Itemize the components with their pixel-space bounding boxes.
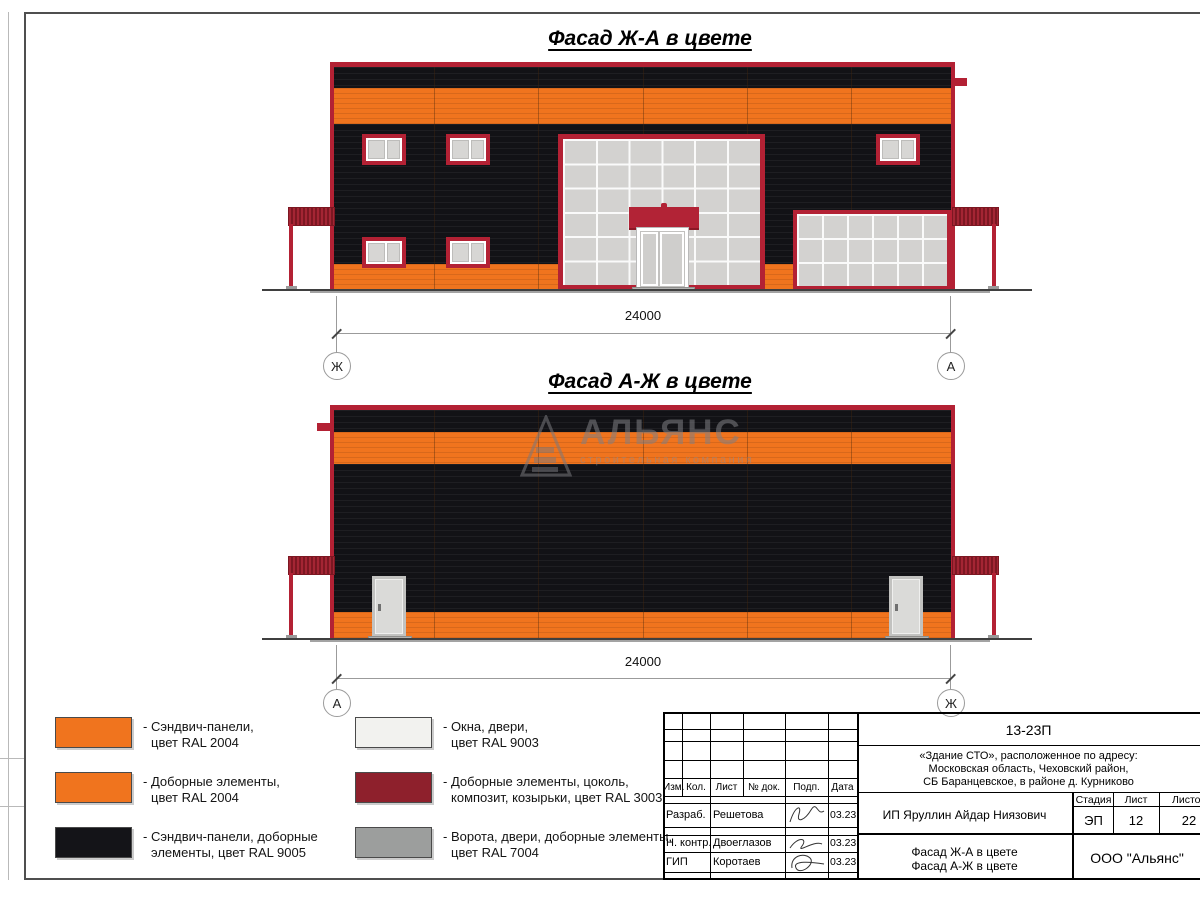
service-door bbox=[889, 576, 923, 637]
panel-joint bbox=[747, 410, 748, 638]
window-pane bbox=[387, 243, 400, 262]
window bbox=[362, 237, 406, 268]
panel-joint bbox=[434, 67, 435, 290]
door-leaf bbox=[660, 232, 684, 286]
legend-label: - Доборные элементы, цоколь,композит, ко… bbox=[443, 774, 662, 806]
date-control: 03.23 bbox=[830, 837, 856, 849]
sheet-margin-divider bbox=[0, 806, 24, 807]
axis-label: А bbox=[947, 359, 956, 374]
service-door bbox=[372, 576, 406, 637]
dimension-value: 24000 bbox=[593, 654, 693, 669]
legend-swatch bbox=[355, 772, 432, 803]
panel-joint bbox=[434, 410, 435, 638]
project-address-line3: СБ Баранцевское, в районе д. Курниково bbox=[857, 776, 1200, 788]
dimension-value: 24000 bbox=[593, 308, 693, 323]
extension-line bbox=[336, 645, 337, 689]
right-curtain-wall bbox=[793, 210, 951, 290]
facade-bottom-building bbox=[330, 405, 955, 638]
window-pane bbox=[452, 140, 469, 159]
window-pane bbox=[901, 140, 914, 159]
facade-bottom-title: Фасад А-Ж в цвете bbox=[400, 370, 900, 394]
gutter-outlet bbox=[317, 423, 331, 431]
axis-label: Ж bbox=[331, 359, 343, 374]
axis-bubble: А bbox=[323, 689, 351, 717]
extension-line bbox=[950, 296, 951, 353]
legend-label: - Ворота, двери, доборные элементы,цвет … bbox=[443, 829, 672, 861]
legend-label: - Сэндвич-панели,цвет RAL 2004 bbox=[143, 719, 254, 751]
axis-bubble: А bbox=[937, 352, 965, 380]
doc-number: 13-23П bbox=[857, 722, 1200, 738]
sheets-total: 22 bbox=[1160, 813, 1200, 828]
window-pane bbox=[387, 140, 400, 159]
legend-swatch bbox=[55, 717, 132, 748]
role-developer: Разраб. bbox=[666, 809, 706, 821]
project-address-line2: Московская область, Чеховский район, bbox=[857, 763, 1200, 775]
window-pane bbox=[368, 140, 385, 159]
sheet-number: 12 bbox=[1113, 813, 1159, 828]
legend-swatch bbox=[55, 827, 132, 858]
curtain-wall-grid bbox=[797, 214, 947, 286]
window-pane bbox=[471, 140, 484, 159]
panel-joint bbox=[851, 410, 852, 638]
sheets-header: Листов bbox=[1160, 794, 1200, 806]
canopy-post bbox=[289, 224, 293, 289]
parapet-trim bbox=[330, 62, 955, 67]
company-name: ООО "Альянс" bbox=[1074, 850, 1200, 866]
canopy-post bbox=[992, 224, 996, 289]
ground-shadow bbox=[310, 640, 990, 642]
legend-swatch bbox=[355, 827, 432, 858]
corner-trim-right bbox=[951, 62, 955, 290]
legend-label: - Доборные элементы,цвет RAL 2004 bbox=[143, 774, 280, 806]
window bbox=[876, 134, 920, 165]
ground-shadow bbox=[310, 291, 990, 293]
axis-bubble: Ж bbox=[323, 352, 351, 380]
role-gip: ГИП bbox=[666, 856, 688, 868]
client-name: ИП Яруллин Айдар Ниязович bbox=[857, 808, 1072, 822]
window bbox=[362, 134, 406, 165]
door-handle bbox=[895, 604, 898, 611]
dimension-line bbox=[336, 678, 950, 679]
legend-swatch bbox=[355, 717, 432, 748]
col-header-doc: № док. bbox=[743, 782, 785, 793]
corner-trim-left bbox=[330, 405, 334, 638]
drawing-sheet: Фасад Ж-А в цвете bbox=[0, 0, 1200, 900]
sheet-margin-line bbox=[8, 12, 9, 880]
legend-swatch bbox=[55, 772, 132, 803]
date-gip: 03.23 bbox=[830, 856, 856, 868]
sheet-frame-top bbox=[24, 12, 1200, 14]
window-pane bbox=[471, 243, 484, 262]
extension-line bbox=[950, 645, 951, 689]
window-pane bbox=[368, 243, 385, 262]
sheet-frame-left bbox=[24, 12, 26, 880]
title-block: 13-23П «Здание СТО», расположенное по ад… bbox=[663, 712, 1200, 880]
facade-top-title: Фасад Ж-А в цвете bbox=[400, 27, 900, 51]
role-control: Н. контр. bbox=[666, 837, 711, 849]
door-leaf bbox=[641, 232, 658, 286]
window bbox=[446, 237, 490, 268]
panel-joint bbox=[643, 410, 644, 638]
window-pane bbox=[882, 140, 899, 159]
signature bbox=[786, 834, 828, 878]
stage-header: Стадия bbox=[1074, 794, 1113, 806]
name-gip: Коротаев bbox=[713, 856, 761, 868]
panel-joint bbox=[538, 67, 539, 290]
canopy-post bbox=[289, 573, 293, 638]
extension-line bbox=[336, 296, 337, 353]
subject-line1: Фасад Ж-А в цвете bbox=[857, 845, 1072, 859]
axis-label: Ж bbox=[945, 696, 957, 711]
entrance-door bbox=[637, 228, 688, 290]
col-header-izm: Изм. bbox=[663, 782, 682, 793]
canopy-post bbox=[992, 573, 996, 638]
window bbox=[446, 134, 490, 165]
sheet-header: Лист bbox=[1113, 794, 1159, 806]
side-canopy-left bbox=[288, 207, 335, 226]
dimension-line bbox=[336, 333, 950, 334]
parapet-trim bbox=[330, 405, 955, 410]
col-header-list: Лист bbox=[710, 782, 743, 793]
col-header-podp: Подп. bbox=[785, 782, 828, 793]
sheet-margin-divider bbox=[0, 758, 24, 759]
panel-joint bbox=[538, 410, 539, 638]
door-handle bbox=[378, 604, 381, 611]
col-header-data: Дата bbox=[828, 782, 857, 793]
corner-trim-right bbox=[951, 405, 955, 638]
facade-top-building bbox=[330, 62, 955, 290]
axis-label: А bbox=[333, 696, 342, 711]
entrance-canopy bbox=[629, 207, 699, 230]
side-canopy-left bbox=[288, 556, 335, 575]
gutter-outlet bbox=[953, 78, 967, 86]
name-developer: Решетова bbox=[713, 809, 763, 821]
corner-trim-left bbox=[330, 62, 334, 290]
signature bbox=[787, 802, 827, 827]
window-pane bbox=[452, 243, 469, 262]
legend-label: - Сэндвич-панели, доборныеэлементы, цвет… bbox=[143, 829, 318, 861]
col-header-kol: Кол. bbox=[682, 782, 710, 793]
project-address-line1: «Здание СТО», расположенное по адресу: bbox=[857, 750, 1200, 762]
stage-value: ЭП bbox=[1074, 813, 1113, 828]
subject-line2: Фасад А-Ж в цвете bbox=[857, 859, 1072, 873]
date-developer: 03.23 bbox=[830, 809, 856, 821]
name-control: Двоеглазов bbox=[713, 837, 771, 849]
legend-label: - Окна, двери,цвет RAL 9003 bbox=[443, 719, 539, 751]
